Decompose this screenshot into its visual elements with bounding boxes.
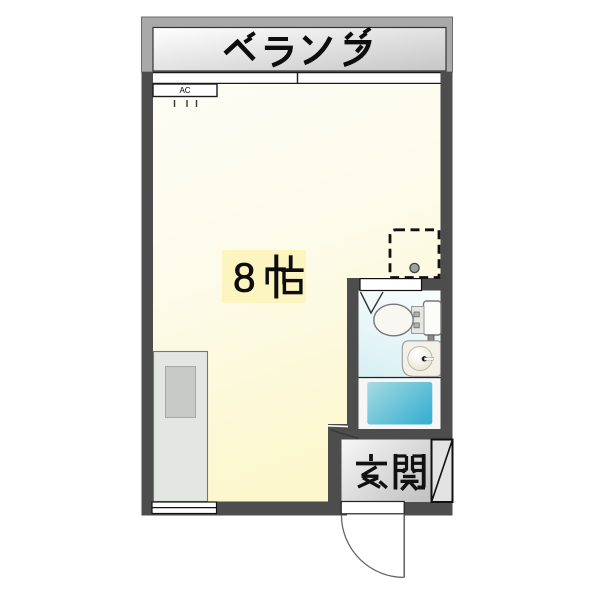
svg-text:AC: AC <box>179 86 190 95</box>
svg-text:8: 8 <box>233 255 256 301</box>
